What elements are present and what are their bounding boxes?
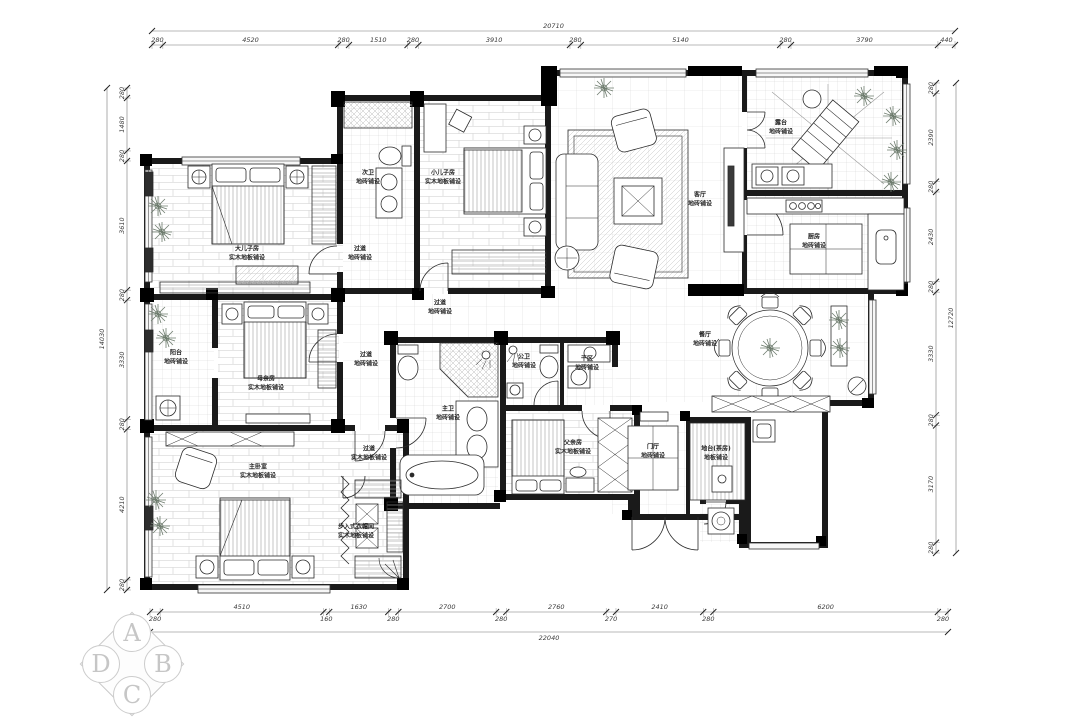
- logo-letter-c: C: [113, 676, 151, 714]
- dim-value: 3910: [486, 36, 503, 44]
- dim-value: 280: [927, 281, 935, 293]
- dim-value: 280: [569, 36, 581, 44]
- dim-value: 3790: [856, 36, 873, 44]
- dim-value: 280: [927, 542, 935, 554]
- logo: A B C D: [76, 608, 186, 718]
- dim-value: 3610: [118, 217, 126, 234]
- dim-value: 280: [779, 36, 791, 44]
- dim-value: 4510: [234, 603, 251, 611]
- dim-chain-bottom: 2804510160163028027002802760270241028062…: [147, 603, 951, 642]
- dim-chain-top: 2804520280151028039102805140280379044020…: [149, 22, 958, 49]
- dim-value: 280: [151, 36, 163, 44]
- dim-value: 280: [118, 150, 126, 162]
- dim-value: 280: [387, 615, 399, 623]
- dim-value: 2700: [439, 603, 456, 611]
- dim-value: 280: [927, 82, 935, 94]
- dim-value: 280: [407, 36, 419, 44]
- dim-value: 2760: [548, 603, 565, 611]
- dim-total: 14030: [98, 329, 106, 350]
- dim-value: 2410: [651, 603, 668, 611]
- dim-chain-left: 280148028036102803330280421028014030: [98, 85, 131, 593]
- dim-value: 1510: [370, 36, 387, 44]
- dim-value: 280: [937, 615, 949, 623]
- dim-value: 440: [940, 36, 952, 44]
- dim-value: 280: [118, 579, 126, 591]
- dim-value: 280: [118, 418, 126, 430]
- dim-value: 2430: [927, 229, 935, 246]
- dim-value: 280: [927, 414, 935, 426]
- dim-total: 22040: [539, 634, 560, 642]
- dim-value: 280: [702, 615, 714, 623]
- dim-chain-right: 280239028024302803330280317028012720: [927, 80, 959, 556]
- dim-value: 1630: [350, 603, 367, 611]
- dim-value: 270: [605, 615, 617, 623]
- dim-value: 3170: [927, 476, 935, 493]
- dim-value: 280: [495, 615, 507, 623]
- dim-value: 6200: [817, 603, 834, 611]
- dim-value: 160: [320, 615, 332, 623]
- logo-letter-b: B: [144, 645, 182, 683]
- dim-value: 1480: [118, 116, 126, 133]
- dim-value: 280: [118, 87, 126, 99]
- dim-total: 12720: [947, 308, 955, 329]
- dim-value: 3330: [927, 345, 935, 362]
- dim-value: 4210: [118, 496, 126, 513]
- dim-value: 280: [337, 36, 349, 44]
- dim-total: 20710: [543, 22, 564, 30]
- dim-value: 280: [927, 181, 935, 193]
- logo-letter-a: A: [113, 614, 151, 652]
- dim-value: 2390: [927, 129, 935, 146]
- logo-letter-d: D: [82, 645, 120, 683]
- dim-value: 3330: [118, 351, 126, 368]
- dim-value: 280: [118, 289, 126, 301]
- floor-plan-sheet: 2804520280151028039102805140280379044020…: [0, 0, 1080, 727]
- dim-value: 5140: [672, 36, 689, 44]
- dim-value: 4520: [242, 36, 259, 44]
